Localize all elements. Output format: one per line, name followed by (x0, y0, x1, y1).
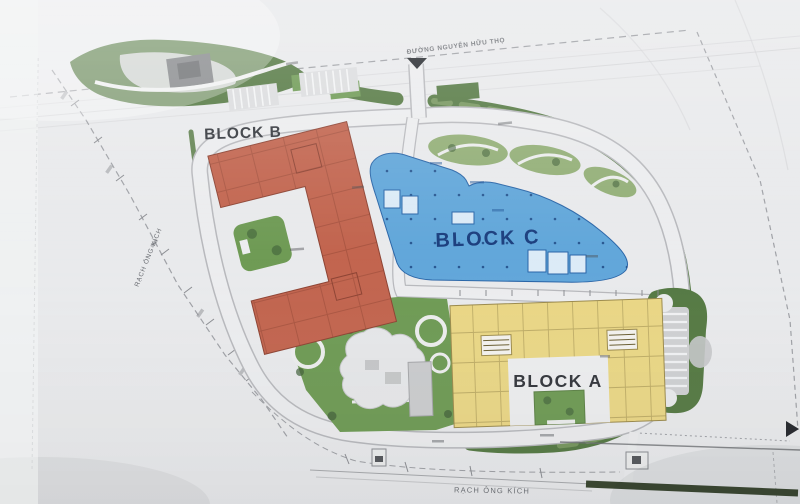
photo-vignette (0, 0, 800, 504)
site-plan-photo: BLOCK B BLOCK C BLOCK A ĐƯỜNG NGUYỄN HỮU… (0, 0, 800, 504)
site-plan-svg: BLOCK B BLOCK C BLOCK A ĐƯỜNG NGUYỄN HỮU… (0, 0, 800, 504)
